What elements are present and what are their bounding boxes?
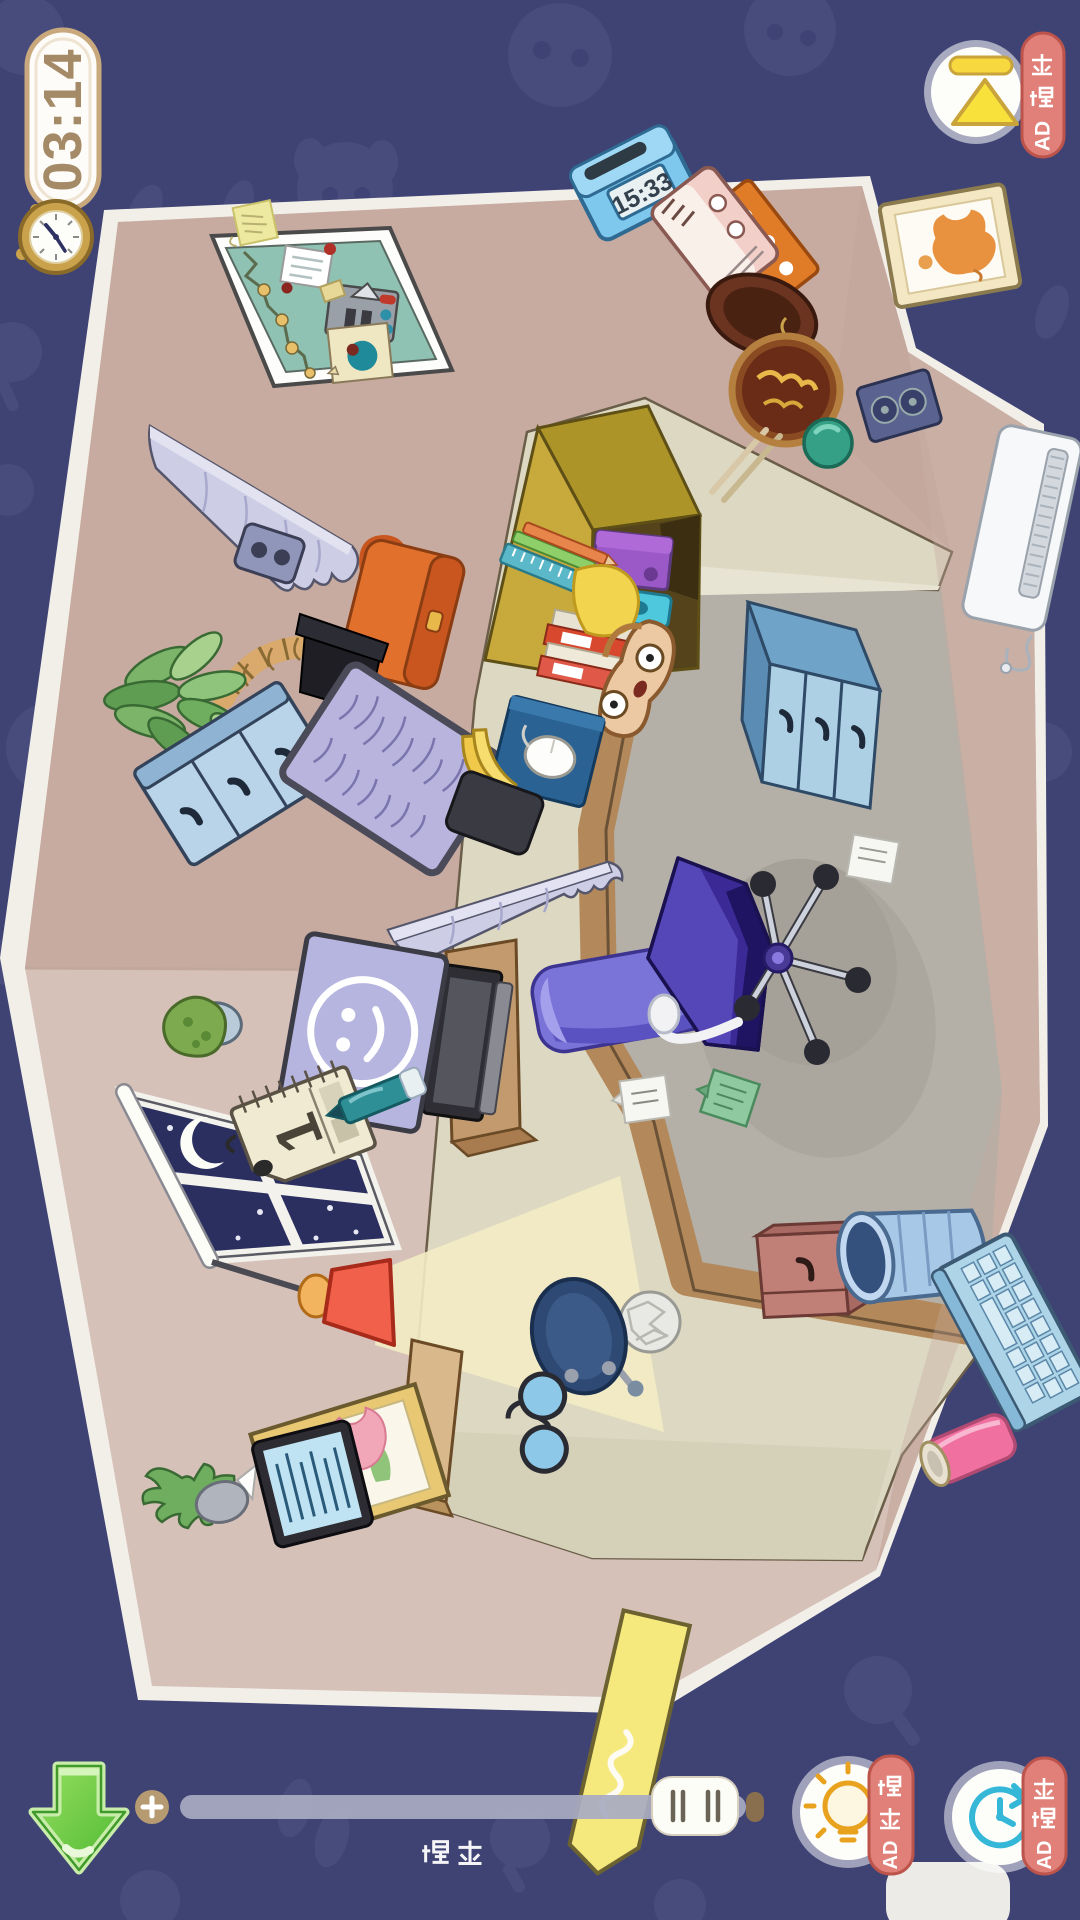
svg-text:AD: AD <box>880 1841 902 1870</box>
svg-text:AD: AD <box>1034 1841 1056 1870</box>
svg-text:03:14: 03:14 <box>33 48 93 191</box>
svg-text:AD: AD <box>1032 121 1055 151</box>
